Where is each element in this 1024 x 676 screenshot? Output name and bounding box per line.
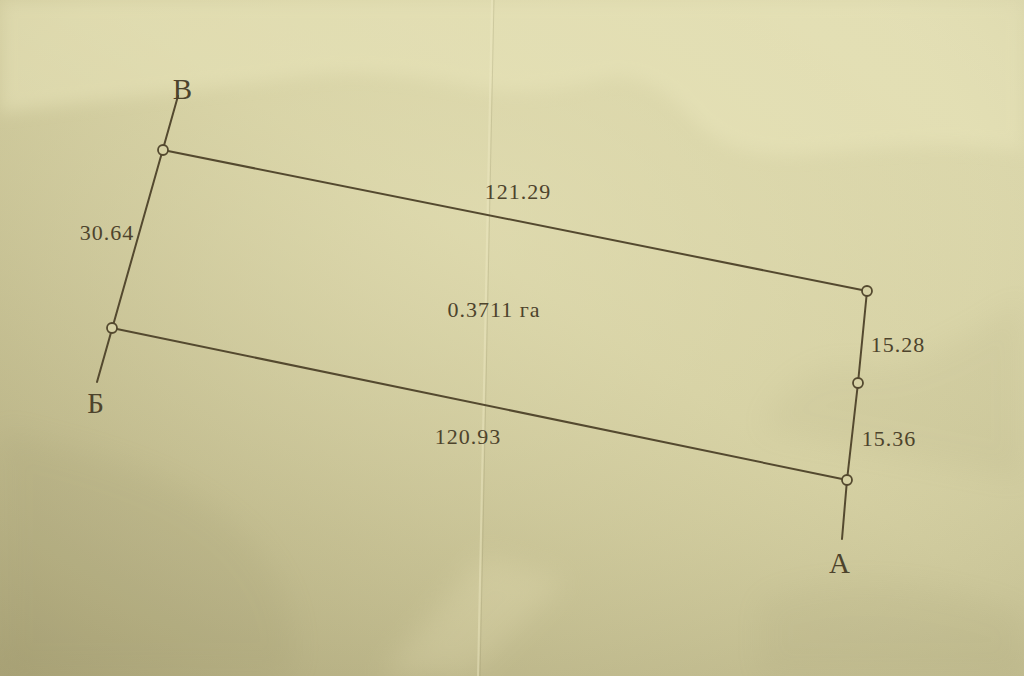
vertex-point-top-right xyxy=(862,286,872,296)
document-photo: В Б А 121.29 30.64 15.28 15.36 120.93 0.… xyxy=(0,0,1024,676)
side-length-right-lower: 15.36 xyxy=(862,426,917,451)
side-length-top: 121.29 xyxy=(485,179,552,204)
side-length-right-upper: 15.28 xyxy=(871,332,926,357)
vertex-point-b xyxy=(107,323,117,333)
vertex-label-b: Б xyxy=(87,387,105,419)
parcel-plan-drawing: В Б А 121.29 30.64 15.28 15.36 120.93 0.… xyxy=(0,0,1024,676)
vertex-label-a: А xyxy=(829,547,851,579)
vertex-point-middle-right xyxy=(853,378,863,388)
side-length-left: 30.64 xyxy=(80,220,135,245)
vertex-point-v xyxy=(158,145,168,155)
vertex-label-v: В xyxy=(173,73,193,105)
vertex-point-a xyxy=(842,475,852,485)
parcel-area-label: 0.3711 га xyxy=(448,297,541,322)
side-length-bottom: 120.93 xyxy=(435,424,502,449)
